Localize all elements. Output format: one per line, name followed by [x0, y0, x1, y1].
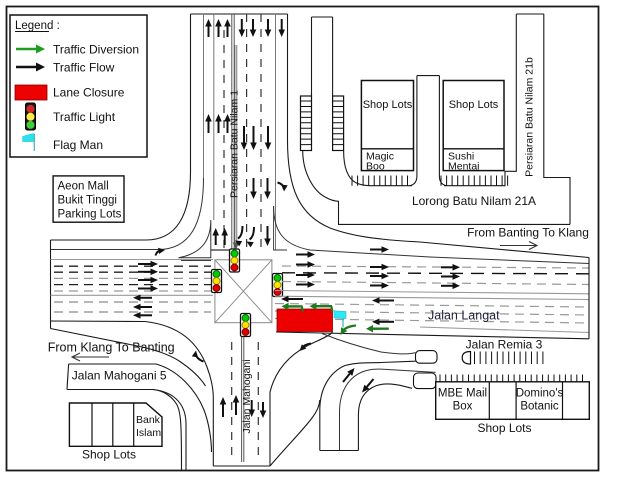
svg-text:Shop Lots: Shop Lots	[363, 99, 413, 111]
svg-text:From Banting To Klang: From Banting To Klang	[467, 226, 589, 240]
svg-text:Traffic Light: Traffic Light	[53, 110, 116, 124]
svg-text:Flag Man: Flag Man	[53, 138, 103, 152]
svg-text:Aeon Mall: Aeon Mall	[58, 181, 109, 193]
svg-text:Persiaran Batu Nilam 1: Persiaran Batu Nilam 1	[229, 90, 241, 198]
svg-text:Jalan Remia 3: Jalan Remia 3	[466, 338, 543, 352]
svg-text:Lorong Batu Nilam 21A: Lorong Batu Nilam 21A	[412, 194, 536, 208]
svg-text:Traffic Flow: Traffic Flow	[53, 61, 115, 75]
svg-text:MBE Mail: MBE Mail	[438, 388, 487, 400]
svg-text:Jalan Mahogani: Jalan Mahogani	[241, 359, 253, 433]
svg-text:Parking Lots: Parking Lots	[58, 209, 122, 221]
svg-text:Legend :: Legend :	[15, 20, 60, 32]
svg-text:Domino's: Domino's	[516, 388, 564, 400]
svg-text:Jalan Mahogani 5: Jalan Mahogani 5	[72, 369, 167, 383]
svg-text:Shop Lots: Shop Lots	[449, 99, 499, 111]
svg-text:Islam: Islam	[136, 427, 161, 439]
svg-text:Bukit Tinggi: Bukit Tinggi	[58, 195, 117, 207]
svg-text:From Klang To Banting: From Klang To Banting	[48, 341, 175, 355]
svg-text:Mentai: Mentai	[448, 161, 480, 173]
svg-text:Shop Lots: Shop Lots	[477, 421, 531, 435]
svg-text:Boo: Boo	[366, 161, 385, 173]
svg-text:Bank: Bank	[136, 414, 161, 426]
svg-text:Box: Box	[453, 401, 473, 413]
svg-text:Persiaran Batu Nilam 21b: Persiaran Batu Nilam 21b	[524, 57, 536, 177]
svg-text:Traffic Diversion: Traffic Diversion	[53, 43, 139, 57]
svg-text:Shop Lots: Shop Lots	[82, 448, 136, 462]
svg-text:Jalan Langat: Jalan Langat	[428, 309, 500, 323]
svg-text:Lane Closure: Lane Closure	[53, 86, 125, 100]
svg-text:Botanic: Botanic	[520, 401, 559, 413]
